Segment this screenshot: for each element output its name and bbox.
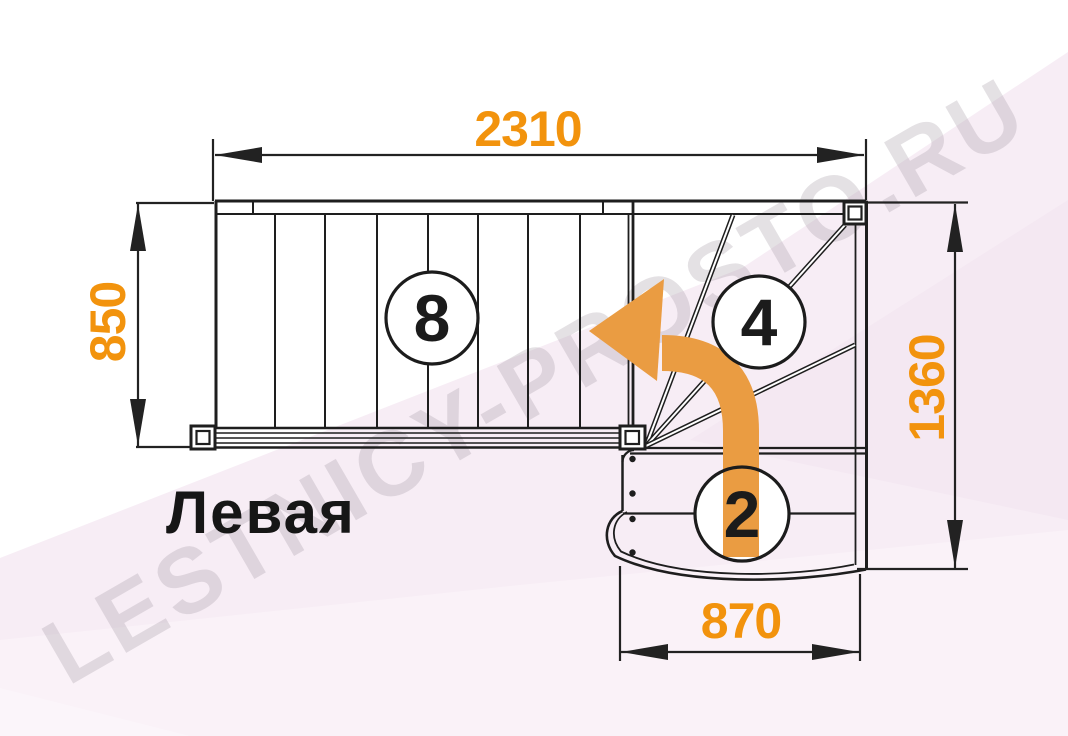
page-title: Левая: [166, 479, 356, 546]
winder-steps-count: 4: [741, 285, 778, 359]
staircase-plan-page: LESTNICY-PROSTO.RU: [0, 0, 1068, 736]
staircase-plan-drawing: LESTNICY-PROSTO.RU: [0, 0, 1068, 736]
dimension-label-right: 1360: [899, 334, 955, 441]
dimension-label-bottom: 870: [701, 593, 781, 649]
upper-steps-count: 8: [414, 281, 451, 355]
lower-steps-count: 2: [724, 477, 761, 551]
dimension-label-top: 2310: [474, 101, 581, 157]
dimension-label-left: 850: [80, 282, 136, 362]
